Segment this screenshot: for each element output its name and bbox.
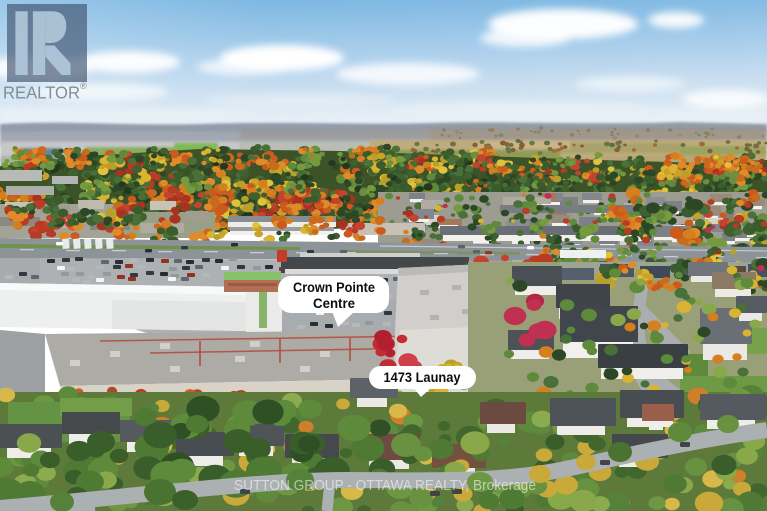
- svg-text:Crown Pointe: Crown Pointe: [293, 280, 375, 295]
- svg-text:REALTOR: REALTOR: [3, 83, 80, 103]
- svg-text:®: ®: [80, 81, 87, 91]
- svg-text:SUTTON GROUP - OTTAWA REALTY,: SUTTON GROUP - OTTAWA REALTY, Brokerage: [234, 477, 536, 494]
- svg-text:1473 Launay: 1473 Launay: [384, 370, 461, 385]
- svg-text:Centre: Centre: [313, 296, 355, 311]
